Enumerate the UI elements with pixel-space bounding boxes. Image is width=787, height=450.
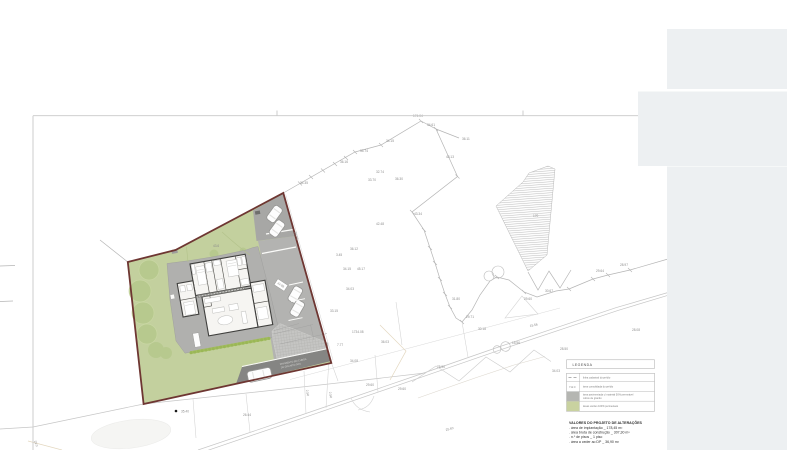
svg-text:30.67: 30.67: [545, 289, 553, 293]
svg-text:42.48: 42.48: [376, 222, 384, 226]
svg-text:30.18: 30.18: [478, 327, 486, 331]
svg-text:75.90: 75.90: [437, 365, 445, 369]
svg-text:29.60: 29.60: [398, 387, 406, 391]
svg-text:cubos de granito: cubos de granito: [583, 397, 602, 400]
svg-text:34.03: 34.03: [346, 287, 354, 291]
svg-text:28.97: 28.97: [620, 263, 628, 267]
svg-text:32.74: 32.74: [376, 170, 384, 174]
svg-text:36.11: 36.11: [462, 137, 470, 141]
svg-text:29.60: 29.60: [366, 383, 374, 387]
svg-text:29.71: 29.71: [466, 315, 474, 319]
svg-text:7.77: 7.77: [337, 343, 343, 347]
svg-text:35.74: 35.74: [360, 149, 368, 153]
svg-text:712.0: 712.0: [569, 385, 576, 389]
svg-text:LEGENDA: LEGENDA: [573, 363, 593, 367]
svg-text:VALORES DO PROJETO DE ALTERAÇÕ: VALORES DO PROJETO DE ALTERAÇÕES: [569, 420, 643, 425]
svg-text:. n.º de pisos _ 1 piso: . n.º de pisos _ 1 piso: [569, 435, 602, 439]
svg-text:34.61: 34.61: [427, 123, 435, 127]
svg-text:34.03: 34.03: [552, 369, 560, 373]
svg-text:36.03: 36.03: [381, 340, 389, 344]
svg-text:36.30: 36.30: [395, 177, 403, 181]
svg-text:28.08: 28.08: [632, 328, 640, 332]
svg-text:43.34: 43.34: [414, 212, 422, 216]
svg-text:área consolidada do prédio: área consolidada do prédio: [583, 386, 614, 389]
svg-text:3.45: 3.45: [336, 253, 342, 257]
svg-text:. área de implantação _ 178,45: . área de implantação _ 178,45 m²: [569, 426, 623, 430]
svg-text:1734.08: 1734.08: [352, 330, 364, 334]
svg-text:28.50: 28.50: [560, 347, 568, 351]
svg-text:15.56: 15.56: [512, 341, 520, 345]
svg-text:34.15: 34.15: [343, 267, 351, 271]
svg-text:29.64: 29.64: [596, 269, 604, 273]
svg-text:36.16: 36.16: [340, 160, 348, 164]
svg-text:29.60: 29.60: [524, 297, 532, 301]
svg-text:43.6: 43.6: [213, 244, 219, 248]
svg-text:34.08: 34.08: [350, 359, 358, 363]
svg-text:. área a ceder ao DP _ 36,90 m: . área a ceder ao DP _ 36,90 m²: [569, 440, 620, 444]
svg-text:33.70: 33.70: [368, 178, 376, 182]
svg-text:linha cadastral do prédio: linha cadastral do prédio: [583, 377, 611, 380]
svg-text:34.35: 34.35: [300, 181, 308, 185]
svg-text:36.12: 36.12: [350, 247, 358, 251]
svg-text:34.15: 34.15: [386, 139, 394, 143]
svg-text:33.15: 33.15: [330, 309, 338, 313]
svg-text:170: 170: [533, 214, 539, 218]
svg-text:. área bruta de construção _ 3: . área bruta de construção _ 307,30 m²: [569, 430, 630, 434]
svg-text:31.80: 31.80: [452, 297, 460, 301]
svg-text:35.40: 35.40: [181, 410, 189, 414]
svg-text:áreas verdes 100% permeáveis: áreas verdes 100% permeáveis: [583, 405, 619, 408]
svg-text:26.44: 26.44: [243, 413, 251, 417]
svg-text:43.13: 43.13: [446, 155, 454, 159]
svg-text:45.17: 45.17: [357, 267, 365, 271]
